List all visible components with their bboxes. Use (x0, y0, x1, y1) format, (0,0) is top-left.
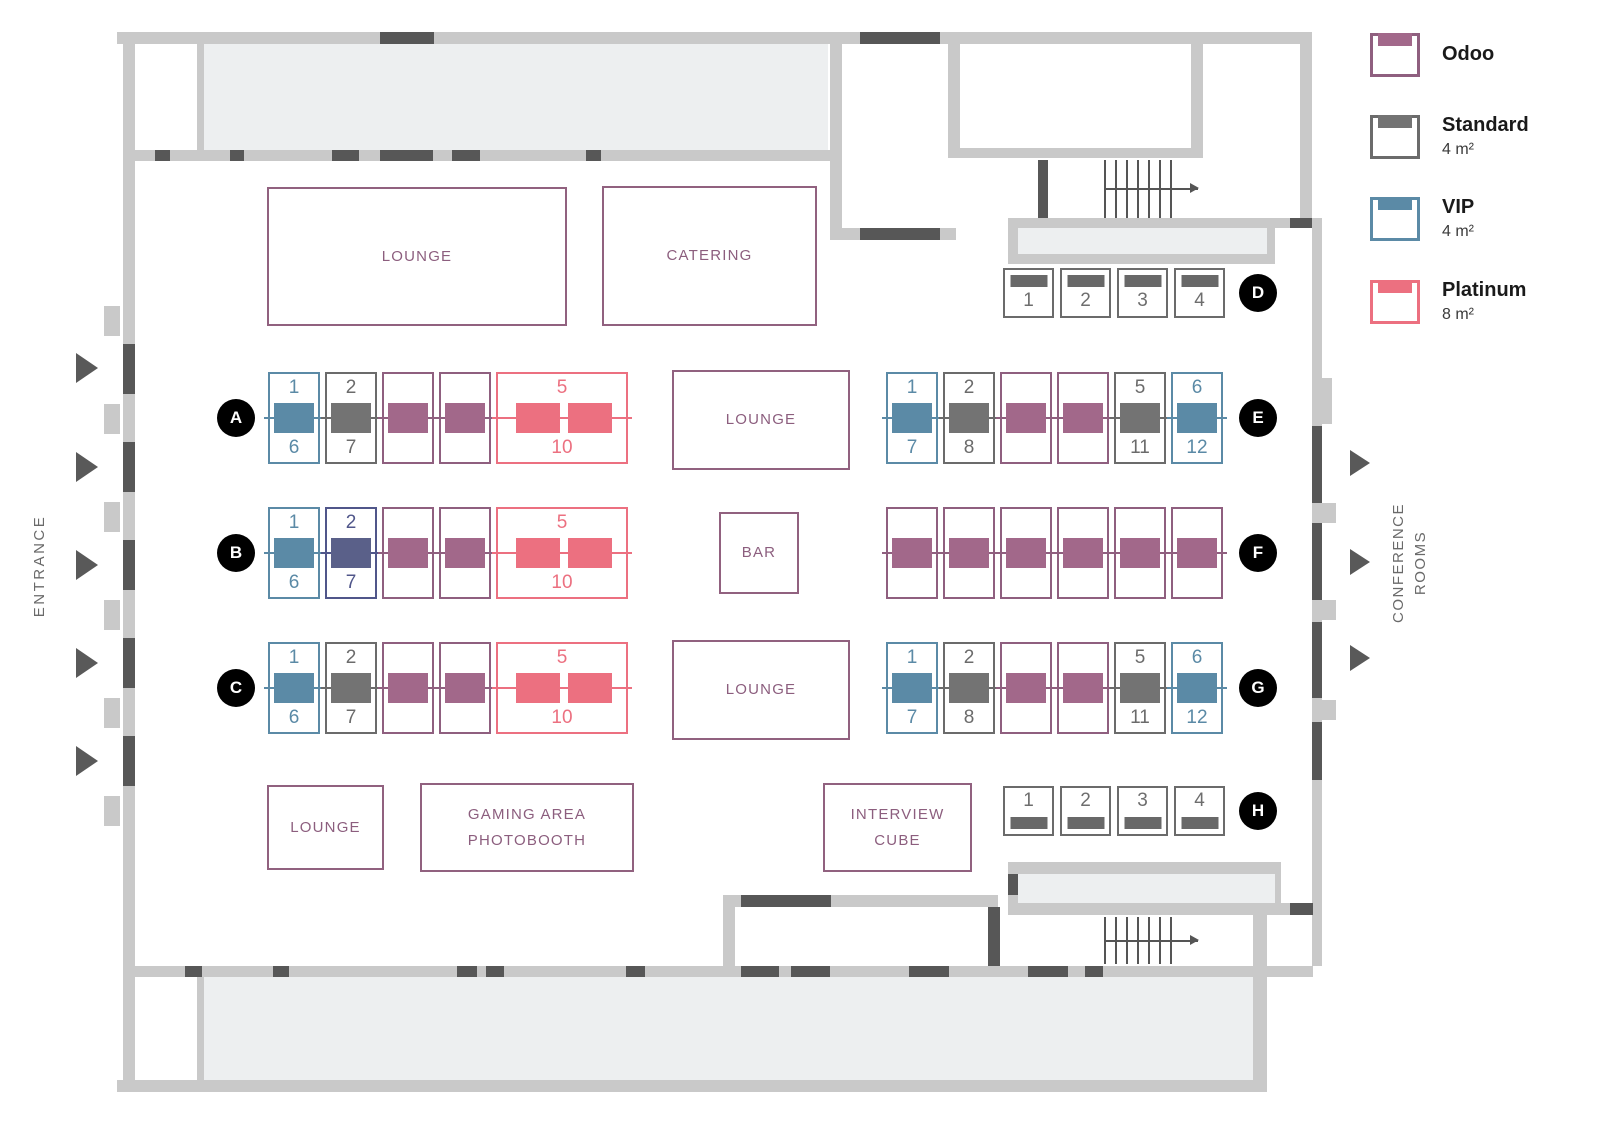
door-segment (1312, 722, 1322, 780)
booth-D-2[interactable]: 2 (1060, 268, 1111, 318)
booth-marker (892, 673, 932, 703)
door-segment (332, 150, 359, 161)
booth-number: 1 (270, 512, 318, 534)
door-segment (860, 228, 940, 240)
door-segment (123, 344, 135, 394)
door-segment (1290, 903, 1313, 915)
door-segment (741, 895, 831, 907)
booth-number: 2 (327, 512, 375, 534)
conference-label-line2: ROOMS (1410, 443, 1432, 683)
row-letter: C (230, 678, 242, 698)
booth-marker (274, 673, 314, 703)
wall-column (104, 698, 120, 728)
booth-number: 10 (498, 572, 626, 594)
booth-marker (1177, 538, 1217, 568)
conference-arrow (1350, 450, 1370, 476)
area-label: LOUNGE (382, 244, 453, 270)
booth-marker (1067, 275, 1104, 287)
booth-marker (568, 403, 612, 433)
booth-marker (445, 538, 485, 568)
booth-E-5[interactable]: 511 (1114, 372, 1166, 464)
desk-surface (1018, 228, 1267, 254)
booth-number: 10 (498, 437, 626, 459)
booth-marker (1006, 673, 1046, 703)
wall-segment (1300, 32, 1312, 228)
odoo-booth-icon (1370, 33, 1420, 77)
stairs-direction-arrow (1104, 188, 1198, 190)
booth-marker (1063, 538, 1103, 568)
booth-marker (1063, 403, 1103, 433)
area-label: LOUNGE (290, 815, 361, 841)
row-label-F: F (1239, 534, 1277, 572)
booth-E-3[interactable] (1000, 372, 1052, 464)
wall-column (104, 306, 120, 336)
area-interview-cube: INTERVIEW CUBE (823, 783, 972, 872)
door-segment (1312, 426, 1322, 503)
door-segment (791, 966, 830, 977)
booth-A-3[interactable] (382, 372, 434, 464)
booth-H-2[interactable]: 2 (1060, 786, 1111, 836)
booth-G-1[interactable]: 17 (886, 642, 938, 734)
booth-number: 4 (1176, 790, 1223, 812)
stairs-top (1104, 160, 1178, 218)
legend-label: Standard (1442, 114, 1529, 137)
booth-marker (516, 538, 560, 568)
entrance-label: ENTRANCE (29, 466, 51, 666)
door-segment (123, 540, 135, 590)
area-label: BAR (742, 540, 776, 566)
row-letter: H (1252, 801, 1264, 821)
booth-marker (331, 403, 371, 433)
booth-number: 7 (888, 437, 936, 459)
booth-number: 6 (1173, 377, 1221, 399)
booth-B-2[interactable]: 27 (325, 507, 377, 599)
booth-B-4[interactable] (439, 507, 491, 599)
booth-number: 2 (1062, 290, 1109, 312)
row-letter: E (1252, 408, 1263, 428)
wall-segment (948, 44, 960, 158)
booth-marker (892, 403, 932, 433)
booth-marker (1067, 817, 1104, 829)
booth-marker (892, 538, 932, 568)
booth-marker (949, 403, 989, 433)
row-label-H: H (1239, 792, 1277, 830)
door-segment (457, 966, 477, 977)
wall-segment (117, 1080, 1267, 1092)
wall-segment (123, 966, 1313, 977)
booth-E-1[interactable]: 17 (886, 372, 938, 464)
wall-segment (117, 32, 1310, 44)
door-segment (741, 966, 779, 977)
booth-A-2[interactable]: 27 (325, 372, 377, 464)
booth-number: 7 (327, 707, 375, 729)
booth-number: 12 (1173, 707, 1221, 729)
booth-marker (1181, 275, 1218, 287)
door-segment (988, 907, 1000, 966)
booth-B-3[interactable] (382, 507, 434, 599)
booth-number: 12 (1173, 437, 1221, 459)
area-catering: CATERING (602, 186, 817, 326)
booth-marker (568, 673, 612, 703)
booth-marker (1006, 538, 1046, 568)
booth-H-3[interactable]: 3 (1117, 786, 1168, 836)
area-label: PHOTOBOOTH (468, 828, 586, 854)
row-letter: B (230, 543, 242, 563)
booth-marker (1378, 280, 1412, 293)
area-label: LOUNGE (726, 677, 797, 703)
door-segment (452, 150, 480, 161)
conference-label-line1: CONFERENCE (1388, 443, 1410, 683)
row-label-A: A (217, 399, 255, 437)
booth-G-4[interactable] (1057, 642, 1109, 734)
floor-plan-canvas: ENTRANCE CONFERENCE ROOMS LOUNGE CATERIN… (0, 0, 1600, 1124)
booth-marker (949, 538, 989, 568)
booth-number: 1 (270, 377, 318, 399)
booth-A-5[interactable]: 510 (496, 372, 628, 464)
area-lounge-center-top: LOUNGE (672, 370, 850, 470)
row-letter: D (1252, 283, 1264, 303)
area-lounge-top: LOUNGE (267, 187, 567, 326)
booth-marker (331, 673, 371, 703)
door-segment (185, 966, 202, 977)
legend-label: VIP (1442, 196, 1474, 219)
booth-marker (388, 673, 428, 703)
door-segment (1312, 523, 1322, 600)
booth-number: 8 (945, 707, 993, 729)
row-label-B: B (217, 534, 255, 572)
row-letter: G (1251, 678, 1264, 698)
booth-G-2[interactable]: 28 (943, 642, 995, 734)
booth-E-4[interactable] (1057, 372, 1109, 464)
wall-segment (197, 44, 204, 150)
entrance-arrow (76, 550, 98, 580)
row-label-D: D (1239, 274, 1277, 312)
booth-marker (1177, 403, 1217, 433)
booth-number: 1 (270, 647, 318, 669)
area-bar: BAR (719, 512, 799, 594)
door-segment (230, 150, 244, 161)
room-area (204, 44, 828, 150)
booth-number: 2 (327, 647, 375, 669)
booth-marker (1181, 817, 1218, 829)
legend-size: 8 m² (1442, 306, 1474, 324)
row-label-C: C (217, 669, 255, 707)
door-segment (626, 966, 645, 977)
booth-number: 2 (945, 377, 993, 399)
booth-G-5[interactable]: 511 (1114, 642, 1166, 734)
booth-G-3[interactable] (1000, 642, 1052, 734)
stairs-direction-arrow (1104, 940, 1198, 942)
wall-column (1322, 503, 1336, 523)
booth-number: 1 (1005, 790, 1052, 812)
door-segment (380, 32, 434, 44)
area-label: LOUNGE (726, 407, 797, 433)
booth-marker (1010, 817, 1047, 829)
booth-F-5[interactable] (1114, 507, 1166, 599)
door-segment (1312, 622, 1322, 698)
booth-B-1[interactable]: 16 (268, 507, 320, 599)
booth-number: 1 (888, 377, 936, 399)
booth-marker (1010, 275, 1047, 287)
booth-marker (1378, 115, 1412, 128)
door-segment (586, 150, 601, 161)
booth-marker (1378, 197, 1412, 210)
door-segment (486, 966, 504, 977)
booth-number: 6 (270, 707, 318, 729)
booth-marker (331, 538, 371, 568)
standard-booth-icon (1370, 115, 1420, 159)
booth-E-2[interactable]: 28 (943, 372, 995, 464)
vip-booth-icon (1370, 197, 1420, 241)
wall-column (104, 796, 120, 826)
booth-A-1[interactable]: 16 (268, 372, 320, 464)
wall-segment (1191, 44, 1203, 148)
booth-H-1[interactable]: 1 (1003, 786, 1054, 836)
door-segment (1290, 218, 1312, 228)
booth-G-6[interactable]: 612 (1171, 642, 1223, 734)
desk-surface (1018, 874, 1275, 903)
booth-D-3[interactable]: 3 (1117, 268, 1168, 318)
booth-number: 5 (1116, 377, 1164, 399)
door-segment (123, 638, 135, 688)
booth-marker (516, 403, 560, 433)
booth-number: 1 (1005, 290, 1052, 312)
booth-marker (388, 538, 428, 568)
booth-number: 1 (888, 647, 936, 669)
row-label-G: G (1239, 669, 1277, 707)
booth-marker (274, 403, 314, 433)
wall-column (104, 600, 120, 630)
booth-marker (1124, 817, 1161, 829)
booth-B-5[interactable]: 510 (496, 507, 628, 599)
booth-marker (516, 673, 560, 703)
wall-segment (197, 977, 204, 1080)
booth-marker (1120, 673, 1160, 703)
booth-number: 7 (327, 572, 375, 594)
booth-marker (274, 538, 314, 568)
booth-C-1[interactable]: 16 (268, 642, 320, 734)
booth-E-6[interactable]: 612 (1171, 372, 1223, 464)
booth-number: 8 (945, 437, 993, 459)
booth-F-1[interactable] (886, 507, 938, 599)
booth-marker (445, 403, 485, 433)
area-lounge-center-bottom: LOUNGE (672, 640, 850, 740)
row-label-E: E (1239, 399, 1277, 437)
legend-label: Platinum (1442, 279, 1526, 302)
booth-number: 5 (498, 377, 626, 399)
booth-number: 7 (888, 707, 936, 729)
booth-marker (949, 673, 989, 703)
booth-number: 5 (498, 647, 626, 669)
booth-marker (1124, 275, 1161, 287)
wall-column (104, 404, 120, 434)
booth-D-4[interactable]: 4 (1174, 268, 1225, 318)
booth-C-4[interactable] (439, 642, 491, 734)
area-label: CATERING (667, 243, 753, 269)
entrance-arrow (76, 746, 98, 776)
booth-marker (1120, 538, 1160, 568)
stairs-bottom (1104, 917, 1178, 964)
wall-segment (1253, 903, 1267, 1092)
row-letter: A (230, 408, 242, 428)
booth-marker (1378, 33, 1412, 46)
platinum-booth-icon (1370, 280, 1420, 324)
booth-F-4[interactable] (1057, 507, 1109, 599)
door-segment (1038, 160, 1048, 218)
booth-number: 11 (1116, 707, 1164, 729)
booth-number: 6 (270, 572, 318, 594)
booth-marker (1120, 403, 1160, 433)
booth-F-2[interactable] (943, 507, 995, 599)
door-segment (380, 150, 433, 161)
booth-number: 5 (1116, 647, 1164, 669)
door-segment (123, 442, 135, 492)
area-lounge-bottom: LOUNGE (267, 785, 384, 870)
conference-rooms-label: CONFERENCE ROOMS (1388, 443, 1432, 683)
legend-size: 4 m² (1442, 223, 1474, 241)
booth-marker (445, 673, 485, 703)
door-segment (1085, 966, 1103, 977)
booth-C-5[interactable]: 510 (496, 642, 628, 734)
legend: OdooStandard4 m²VIP4 m²Platinum8 m² (1370, 30, 1590, 360)
booth-C-3[interactable] (382, 642, 434, 734)
booth-marker (1177, 673, 1217, 703)
entrance-arrow (76, 353, 98, 383)
door-segment (1028, 966, 1068, 977)
area-label: GAMING AREA (468, 802, 586, 828)
legend-label: Odoo (1442, 43, 1494, 66)
legend-item-odoo: Odoo (1370, 33, 1590, 93)
booth-number: 10 (498, 707, 626, 729)
conference-arrow (1350, 549, 1370, 575)
booth-H-4[interactable]: 4 (1174, 786, 1225, 836)
booth-number: 3 (1119, 790, 1166, 812)
booth-marker (1006, 403, 1046, 433)
entrance-arrow (76, 648, 98, 678)
wall-column (104, 502, 120, 532)
legend-item-platinum: Platinum8 m² (1370, 280, 1590, 340)
area-gaming-photobooth: GAMING AREA PHOTOBOOTH (420, 783, 634, 872)
booth-marker (388, 403, 428, 433)
door-segment (860, 32, 940, 44)
door-segment (155, 150, 170, 161)
door-segment (909, 966, 949, 977)
row-letter: F (1253, 543, 1263, 563)
legend-size: 4 m² (1442, 141, 1474, 159)
wall-segment (1312, 378, 1332, 424)
booth-number: 11 (1116, 437, 1164, 459)
conference-arrow (1350, 645, 1370, 671)
booth-marker (568, 538, 612, 568)
area-label: INTERVIEW (851, 802, 945, 828)
wall-column (1322, 600, 1336, 620)
door-segment (1008, 874, 1018, 895)
door-segment (273, 966, 289, 977)
booth-number: 2 (945, 647, 993, 669)
booth-C-2[interactable]: 27 (325, 642, 377, 734)
wall-segment (830, 44, 842, 240)
booth-number: 4 (1176, 290, 1223, 312)
wall-column (1322, 700, 1336, 720)
booth-F-3[interactable] (1000, 507, 1052, 599)
booth-A-4[interactable] (439, 372, 491, 464)
booth-number: 2 (327, 377, 375, 399)
wall-segment (948, 148, 1203, 158)
legend-item-standard: Standard4 m² (1370, 115, 1590, 175)
booth-number: 7 (327, 437, 375, 459)
entrance-arrow (76, 452, 98, 482)
booth-number: 3 (1119, 290, 1166, 312)
wall-segment (723, 895, 735, 966)
booth-marker (1063, 673, 1103, 703)
room-area (204, 977, 1253, 1080)
door-segment (123, 736, 135, 786)
booth-F-6[interactable] (1171, 507, 1223, 599)
booth-number: 2 (1062, 790, 1109, 812)
booth-number: 5 (498, 512, 626, 534)
booth-number: 6 (1173, 647, 1221, 669)
booth-D-1[interactable]: 1 (1003, 268, 1054, 318)
legend-item-vip: VIP4 m² (1370, 197, 1590, 257)
area-label: CUBE (874, 828, 920, 854)
booth-number: 6 (270, 437, 318, 459)
